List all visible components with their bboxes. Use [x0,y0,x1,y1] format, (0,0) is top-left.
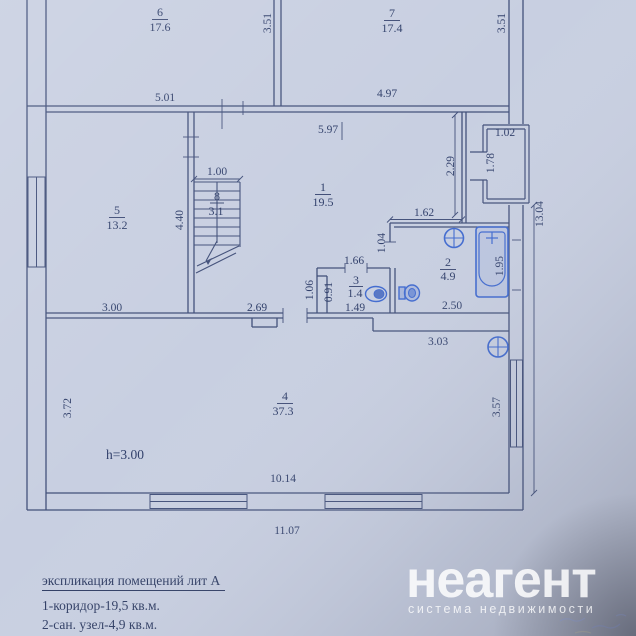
dim-bath-door: 1.04 [376,233,388,253]
room-3-number: 3 [353,273,359,287]
dim-stairs-width: 1.00 [207,166,227,178]
dim-bath-bottom: 2.50 [442,300,462,312]
room-1-number: 1 [320,180,326,194]
dim-wc-area-inner: 1.49 [345,302,365,314]
dim-porch-width: 1.02 [495,127,515,139]
dim-wc-left-inner: 0.91 [323,282,335,302]
watermark-brand: неагент [406,551,596,609]
floor-plan-scan: 6 17.6 7 17.4 1 19.5 5 13.2 8 3.1 2 4.9 … [0,0,636,636]
dim-hall-width: 5.97 [318,124,338,136]
room-6-area: 17.6 [150,20,171,34]
dim-room4-bottom: 10.14 [270,473,296,485]
dim-hall-bottom: 2.69 [247,302,267,314]
dim-room6-depth: 3.51 [262,13,274,33]
watermark-tagline: система недвижимости [408,602,595,616]
room-2-area: 4.9 [441,269,456,283]
explication-title: экспликация помещений лит А [42,573,220,588]
room-3-area: 1.4 [348,286,363,300]
washbasin-icon-room4 [488,337,508,357]
dim-room4-left: 3.72 [62,398,74,418]
room-5-number: 5 [114,203,120,217]
dim-wc-top: 1.66 [344,255,364,267]
dim-room7-depth: 3.51 [496,13,508,33]
dim-room4-top-right: 3.03 [428,336,448,348]
dim-right-side-total: 13.04 [534,201,546,227]
room-8-area: 3.1 [209,204,224,218]
toilet-icon [399,285,420,301]
dim-stairs-depth: 4.40 [174,210,186,230]
washbasin-icon-bath [444,228,464,248]
room-6-number: 6 [157,5,163,19]
room-5-area: 13.2 [107,218,128,232]
explication-item-2: 2-сан. узел-4,9 кв.м. [42,617,157,632]
room-2-number: 2 [445,255,451,269]
dim-entry-wall: 2.29 [445,156,457,176]
room-8-number: 8 [214,189,220,203]
ceiling-height-note: h=3.00 [106,447,144,462]
room-4-number: 4 [282,389,288,403]
room-4-area: 37.3 [273,404,294,418]
dim-room7-width: 4.97 [377,88,397,100]
dim-room6-width: 5.01 [155,92,175,104]
room-1-area: 19.5 [313,195,334,209]
watermark: неагент система недвижимости [406,551,596,616]
dim-porch-depth: 1.78 [485,153,497,173]
dim-room4-right: 3.57 [491,397,503,417]
room-7-number: 7 [389,6,395,20]
dim-building-bottom: 11.07 [274,525,300,537]
dim-bath-top: 1.62 [414,207,434,219]
explication-item-1: 1-коридор-19,5 кв.м. [42,598,160,613]
dim-room5-bottom: 3.00 [102,302,122,314]
dim-wc-left-outer: 1.06 [304,280,316,300]
room-7-area: 17.4 [382,21,403,35]
dim-bathtub-length: 1.95 [494,256,506,276]
